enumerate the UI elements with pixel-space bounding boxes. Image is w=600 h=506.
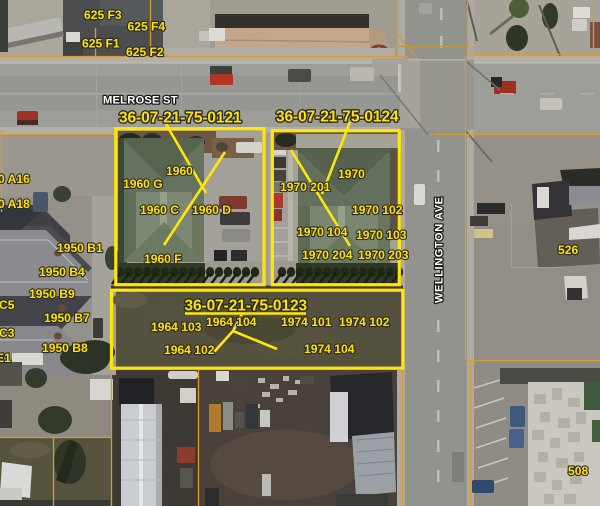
svg-text:1960 C: 1960 C xyxy=(140,203,179,217)
svg-text:C3: C3 xyxy=(0,326,15,340)
svg-text:1964 103: 1964 103 xyxy=(151,320,202,334)
svg-text:625 F4: 625 F4 xyxy=(128,20,166,34)
svg-text:1964 102: 1964 102 xyxy=(164,343,215,357)
svg-text:625 F1: 625 F1 xyxy=(82,37,120,51)
svg-text:1964 104: 1964 104 xyxy=(206,315,257,329)
svg-text:1970: 1970 xyxy=(338,167,365,181)
svg-text:1960 D: 1960 D xyxy=(192,203,231,217)
svg-text:625 F3: 625 F3 xyxy=(84,8,122,22)
svg-text:WELLINGTON AVE: WELLINGTON AVE xyxy=(434,196,446,303)
svg-text:1974 104: 1974 104 xyxy=(304,342,355,356)
svg-text:C5: C5 xyxy=(0,298,15,312)
svg-text:1960 G: 1960 G xyxy=(123,177,163,191)
svg-text:1970 204: 1970 204 xyxy=(302,248,353,262)
svg-text:1970 104: 1970 104 xyxy=(297,225,348,239)
svg-text:0 A16: 0 A16 xyxy=(0,172,30,186)
svg-text:MELROSE ST: MELROSE ST xyxy=(103,95,178,107)
svg-text:1960 F: 1960 F xyxy=(144,252,182,266)
svg-text:E1: E1 xyxy=(0,351,11,365)
svg-text:1970 203: 1970 203 xyxy=(358,248,409,262)
svg-text:1970 201: 1970 201 xyxy=(280,180,331,194)
svg-text:1950 B1: 1950 B1 xyxy=(57,241,103,255)
svg-text:1974 101: 1974 101 xyxy=(281,315,332,329)
svg-text:625 F2: 625 F2 xyxy=(126,45,164,59)
svg-text:1950 B8: 1950 B8 xyxy=(42,341,88,355)
svg-text:1970 103: 1970 103 xyxy=(356,228,407,242)
svg-text:36-07-21-75-0121: 36-07-21-75-0121 xyxy=(119,110,242,127)
svg-text:1950 B7: 1950 B7 xyxy=(44,311,90,325)
svg-text:1974 102: 1974 102 xyxy=(339,315,390,329)
svg-text:36-07-21-75-0124: 36-07-21-75-0124 xyxy=(276,108,399,125)
svg-text:1950 B4: 1950 B4 xyxy=(39,265,85,279)
svg-text:1960: 1960 xyxy=(166,164,193,178)
svg-text:36-07-21-75-0123: 36-07-21-75-0123 xyxy=(185,298,308,315)
svg-text:508: 508 xyxy=(568,464,588,478)
svg-text:1970 102: 1970 102 xyxy=(352,203,403,217)
svg-text:1950 B9: 1950 B9 xyxy=(29,287,75,301)
svg-text:0 A18: 0 A18 xyxy=(0,197,30,211)
svg-text:526: 526 xyxy=(558,243,578,257)
